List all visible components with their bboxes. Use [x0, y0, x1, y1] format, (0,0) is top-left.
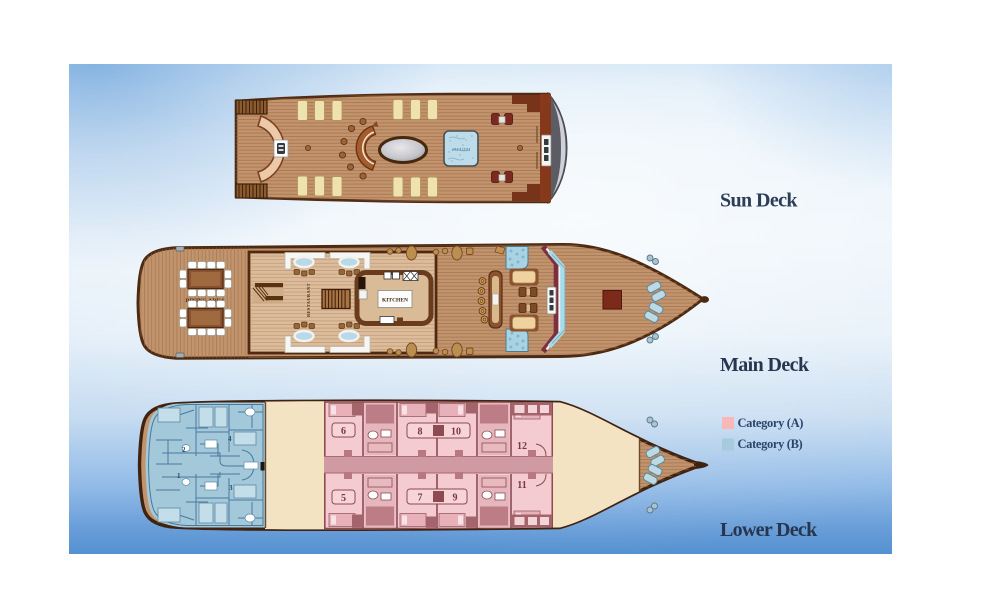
svg-text:Lower Deck: Lower Deck [720, 519, 818, 541]
svg-text:4: 4 [228, 435, 232, 443]
svg-text:7: 7 [418, 493, 423, 504]
svg-text:9: 9 [453, 493, 458, 504]
svg-text:6: 6 [341, 426, 346, 437]
svg-text:RESTAURANT: RESTAURANT [306, 283, 311, 317]
svg-text:12: 12 [517, 441, 527, 452]
svg-text:11: 11 [517, 480, 526, 491]
svg-text:Main Deck: Main Deck [720, 354, 810, 376]
svg-text:JACUZZI: JACUZZI [452, 147, 471, 152]
svg-text:2: 2 [182, 446, 186, 454]
svg-text:3: 3 [229, 484, 233, 492]
svg-text:Category (B): Category (B) [738, 437, 803, 451]
svg-text:8: 8 [418, 427, 423, 438]
svg-text:10: 10 [451, 427, 461, 438]
svg-text:Category (A): Category (A) [738, 416, 804, 430]
svg-text:Sun Deck: Sun Deck [720, 190, 798, 212]
svg-text:1: 1 [177, 472, 181, 480]
svg-text:5: 5 [341, 493, 346, 504]
svg-text:KITCHEN: KITCHEN [382, 298, 408, 304]
